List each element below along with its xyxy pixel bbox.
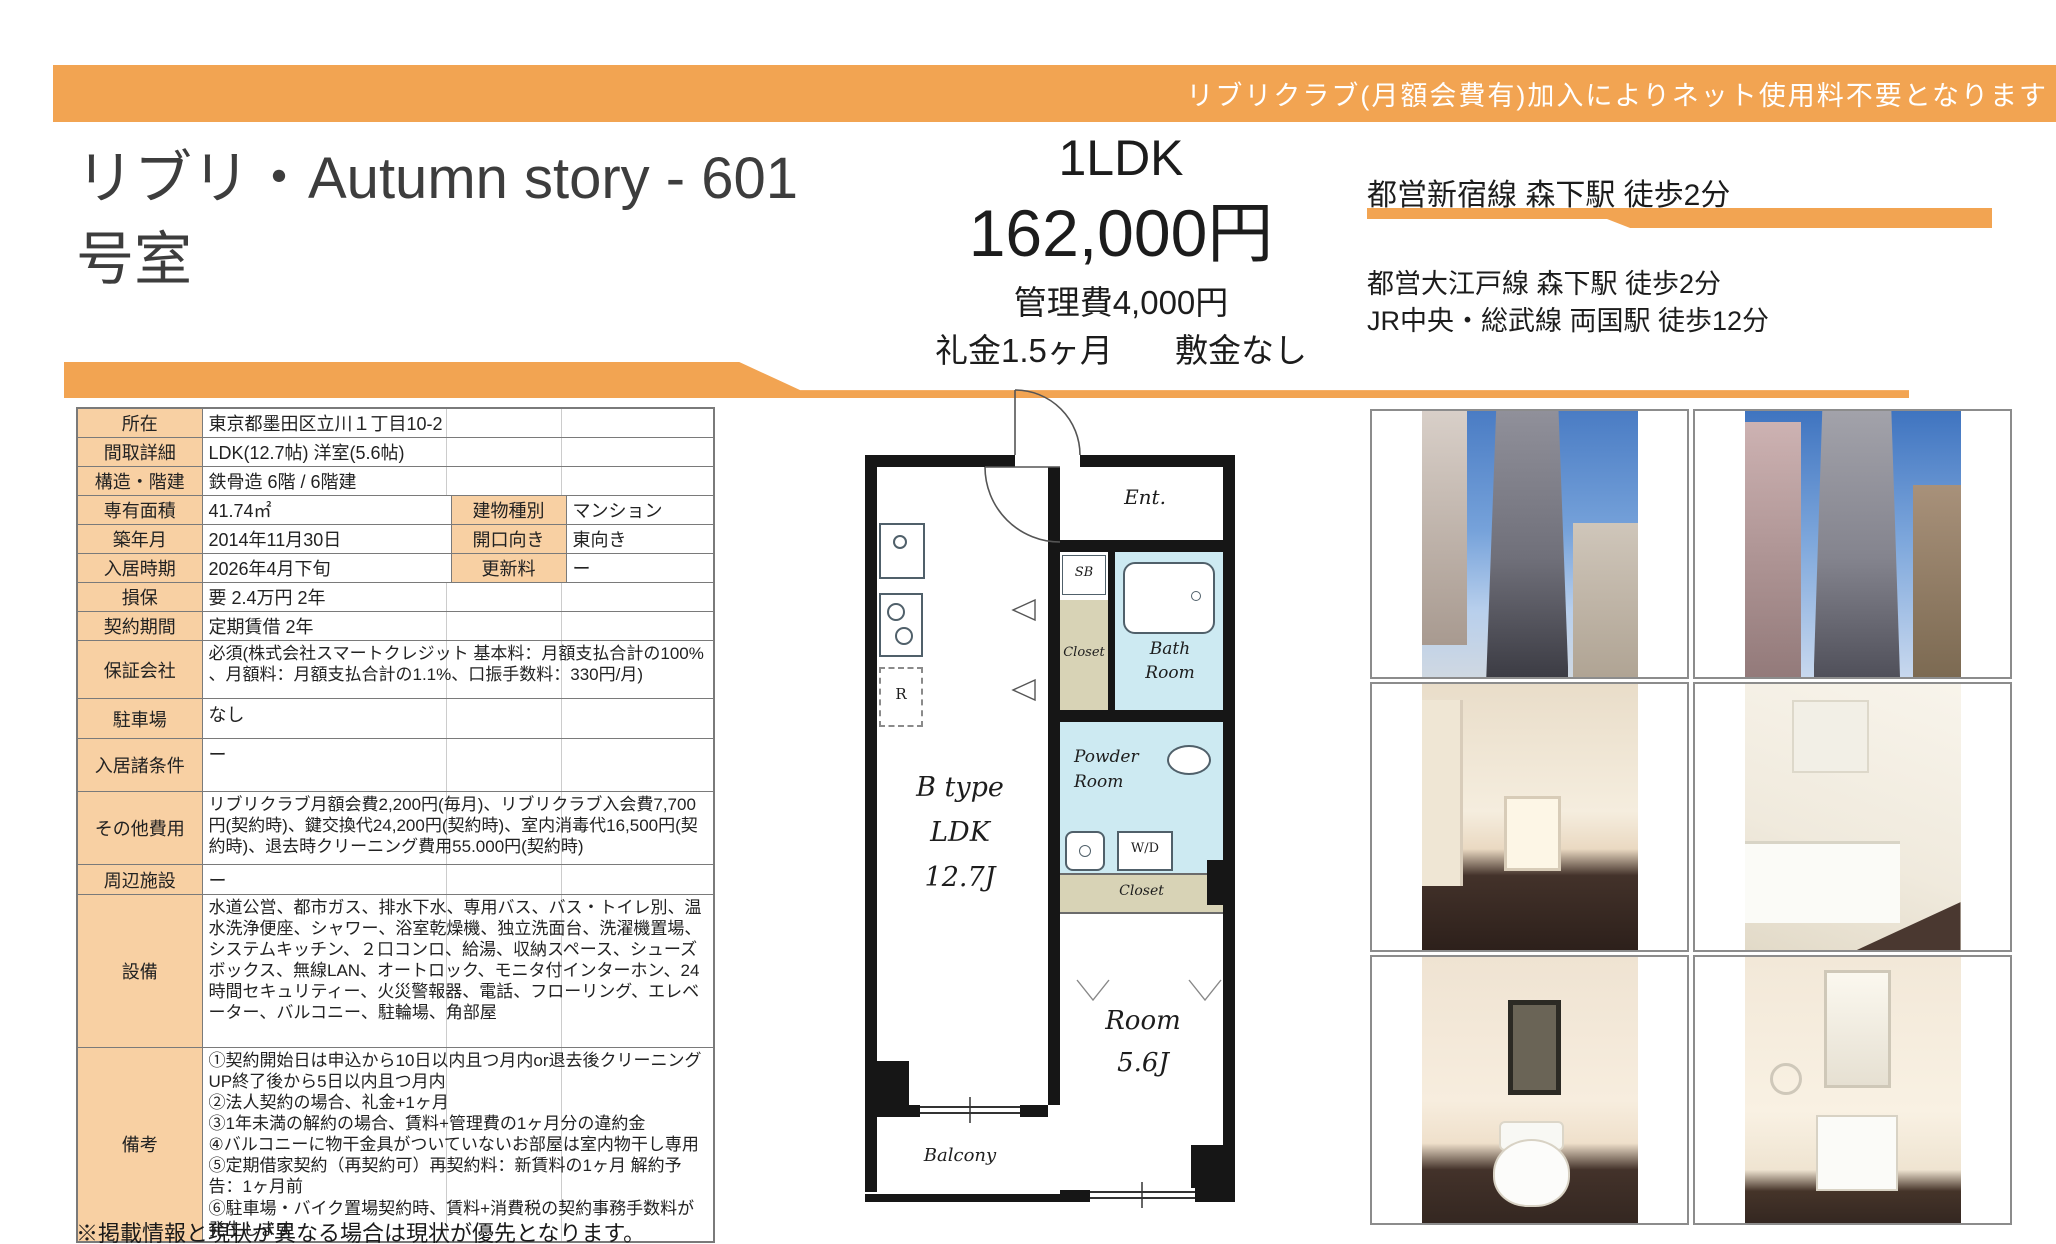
disclaimer-note: ※掲載情報と現状が異なる場合は現状が優先となります。 xyxy=(76,1216,645,1244)
washer-dryer-label: W/D xyxy=(1117,841,1173,856)
key-money: 礼金1.5ヶ月 xyxy=(935,332,1113,370)
table-value-cell: ー xyxy=(202,865,714,895)
table-label-cell: 開口向き xyxy=(451,525,566,554)
table-label-cell: 設備 xyxy=(77,895,202,1048)
page-title: リブリ・Autumn story - 601 号室 xyxy=(76,138,798,300)
table-label-cell: 所在 xyxy=(77,408,202,438)
table-value-cell: 東京都墨田区立川１丁目10-2 xyxy=(202,408,714,438)
table-value-cell: 定期賃借 2年 xyxy=(202,612,714,641)
photo-hallway-interior xyxy=(1370,682,1689,952)
table-label-cell: その他費用 xyxy=(77,792,202,865)
table-value-cell: 2026年4月下旬 xyxy=(202,554,451,583)
table-value-cell: 東向き xyxy=(566,525,714,554)
bathroom-label: Bath Room xyxy=(1117,637,1223,685)
table-label-cell: 契約期間 xyxy=(77,612,202,641)
table-value-cell: なし xyxy=(202,699,714,739)
photo-washbasin-vanity xyxy=(1693,955,2012,1225)
table-label-cell: 保証会社 xyxy=(77,641,202,699)
table-value-cell: リブリクラブ月額会費2,200円(毎月)、リブリクラブ入会費7,700円(契約時… xyxy=(202,792,714,865)
banner-text: リブリクラブ(月額会費有)加入によりネット使用料不要となります xyxy=(1186,74,2048,113)
table-value-cell: 水道公営、都市ガス、排水下水、専用バス、バス・トイレ別、温水洗浄便座、シャワー、… xyxy=(202,895,714,1048)
property-spec-table: 所在 東京都墨田区立川１丁目10-2 間取詳細 LDK(12.7帖) 洋室(5.… xyxy=(76,407,715,1243)
table-label-cell: 周辺施設 xyxy=(77,865,202,895)
table-value-cell: LDK(12.7帖) 洋室(5.6帖) xyxy=(202,438,714,467)
access-line-primary: 都営新宿線 森下駅 徒歩2分 xyxy=(1367,170,1730,214)
table-label-cell: 備考 xyxy=(77,1048,202,1242)
access-line-tertiary: JR中央・総武線 両国駅 徒歩12分 xyxy=(1367,299,1769,338)
closet-mid-label: Closet xyxy=(1060,883,1223,899)
bedroom-label: Room 5.6J xyxy=(1085,1000,1201,1084)
table-label-cell: 更新料 xyxy=(451,554,566,583)
balcony-label: Balcony xyxy=(905,1145,1015,1166)
table-label-cell: 入居時期 xyxy=(77,554,202,583)
table-label-cell: 建物種別 xyxy=(451,496,566,525)
table-label-cell: 構造・階建 xyxy=(77,467,202,496)
table-label-cell: 築年月 xyxy=(77,525,202,554)
floor-plan: Ent. SB Closet Bath Room Powder Room W/D… xyxy=(865,445,1235,1215)
table-value-cell: ①契約開始日は申込から10日以内且つ月内or退去後クリーニングUP終了後から5日… xyxy=(202,1048,714,1242)
access-underline-ribbon xyxy=(1367,208,1992,228)
flyer-page: リブリクラブ(月額会費有)加入によりネット使用料不要となります リブリ・Autu… xyxy=(0,0,2056,1244)
powder-room-label: Powder Room xyxy=(1070,745,1182,795)
deposit: 敷金なし xyxy=(1175,332,1307,370)
table-value-cell: ー xyxy=(202,739,714,792)
title-line2: 号室 xyxy=(76,219,798,300)
photo-kitchen xyxy=(1693,682,2012,952)
entrance-label: Ent. xyxy=(1095,485,1195,509)
table-value-cell: 必須(株式会社スマートクレジット 基本料：月額支払合計の100% 、月額料：月額… xyxy=(202,641,714,699)
title-line1: リブリ・Autumn story - 601 xyxy=(76,138,798,219)
rent-summary: 1LDK 162,000円 管理費4,000円 礼金1.5ヶ月 敷金なし xyxy=(935,130,1307,370)
photo-building-exterior-front xyxy=(1370,409,1689,679)
table-value-cell: 2014年11月30日 xyxy=(202,525,451,554)
management-fee: 管理費4,000円 xyxy=(935,284,1307,322)
rent-amount: 162,000円 xyxy=(935,196,1307,270)
table-value-cell: 鉄骨造 6階 / 6階建 xyxy=(202,467,714,496)
layout-type: 1LDK xyxy=(935,130,1307,186)
closet-upper-label: Closet xyxy=(1058,645,1110,660)
table-value-cell: ー xyxy=(566,554,714,583)
photo-building-exterior-side xyxy=(1693,409,2012,679)
table-value-cell: マンション xyxy=(566,496,714,525)
access-line-secondary: 都営大江戸線 森下駅 徒歩2分 xyxy=(1367,262,1721,301)
ldk-label: B type LDK 12.7J xyxy=(890,765,1030,900)
refrigerator-label: R xyxy=(879,685,923,703)
top-banner: リブリクラブ(月額会費有)加入によりネット使用料不要となります xyxy=(53,65,2056,122)
table-value-cell: 要 2.4万円 2年 xyxy=(202,583,714,612)
table-label-cell: 入居諸条件 xyxy=(77,739,202,792)
table-value-cell: 41.74㎡ xyxy=(202,496,451,525)
table-label-cell: 駐車場 xyxy=(77,699,202,739)
table-label-cell: 損保 xyxy=(77,583,202,612)
shoebox-label: SB xyxy=(1062,565,1106,580)
table-label-cell: 間取詳細 xyxy=(77,438,202,467)
photo-toilet-room xyxy=(1370,955,1689,1225)
table-label-cell: 専有面積 xyxy=(77,496,202,525)
